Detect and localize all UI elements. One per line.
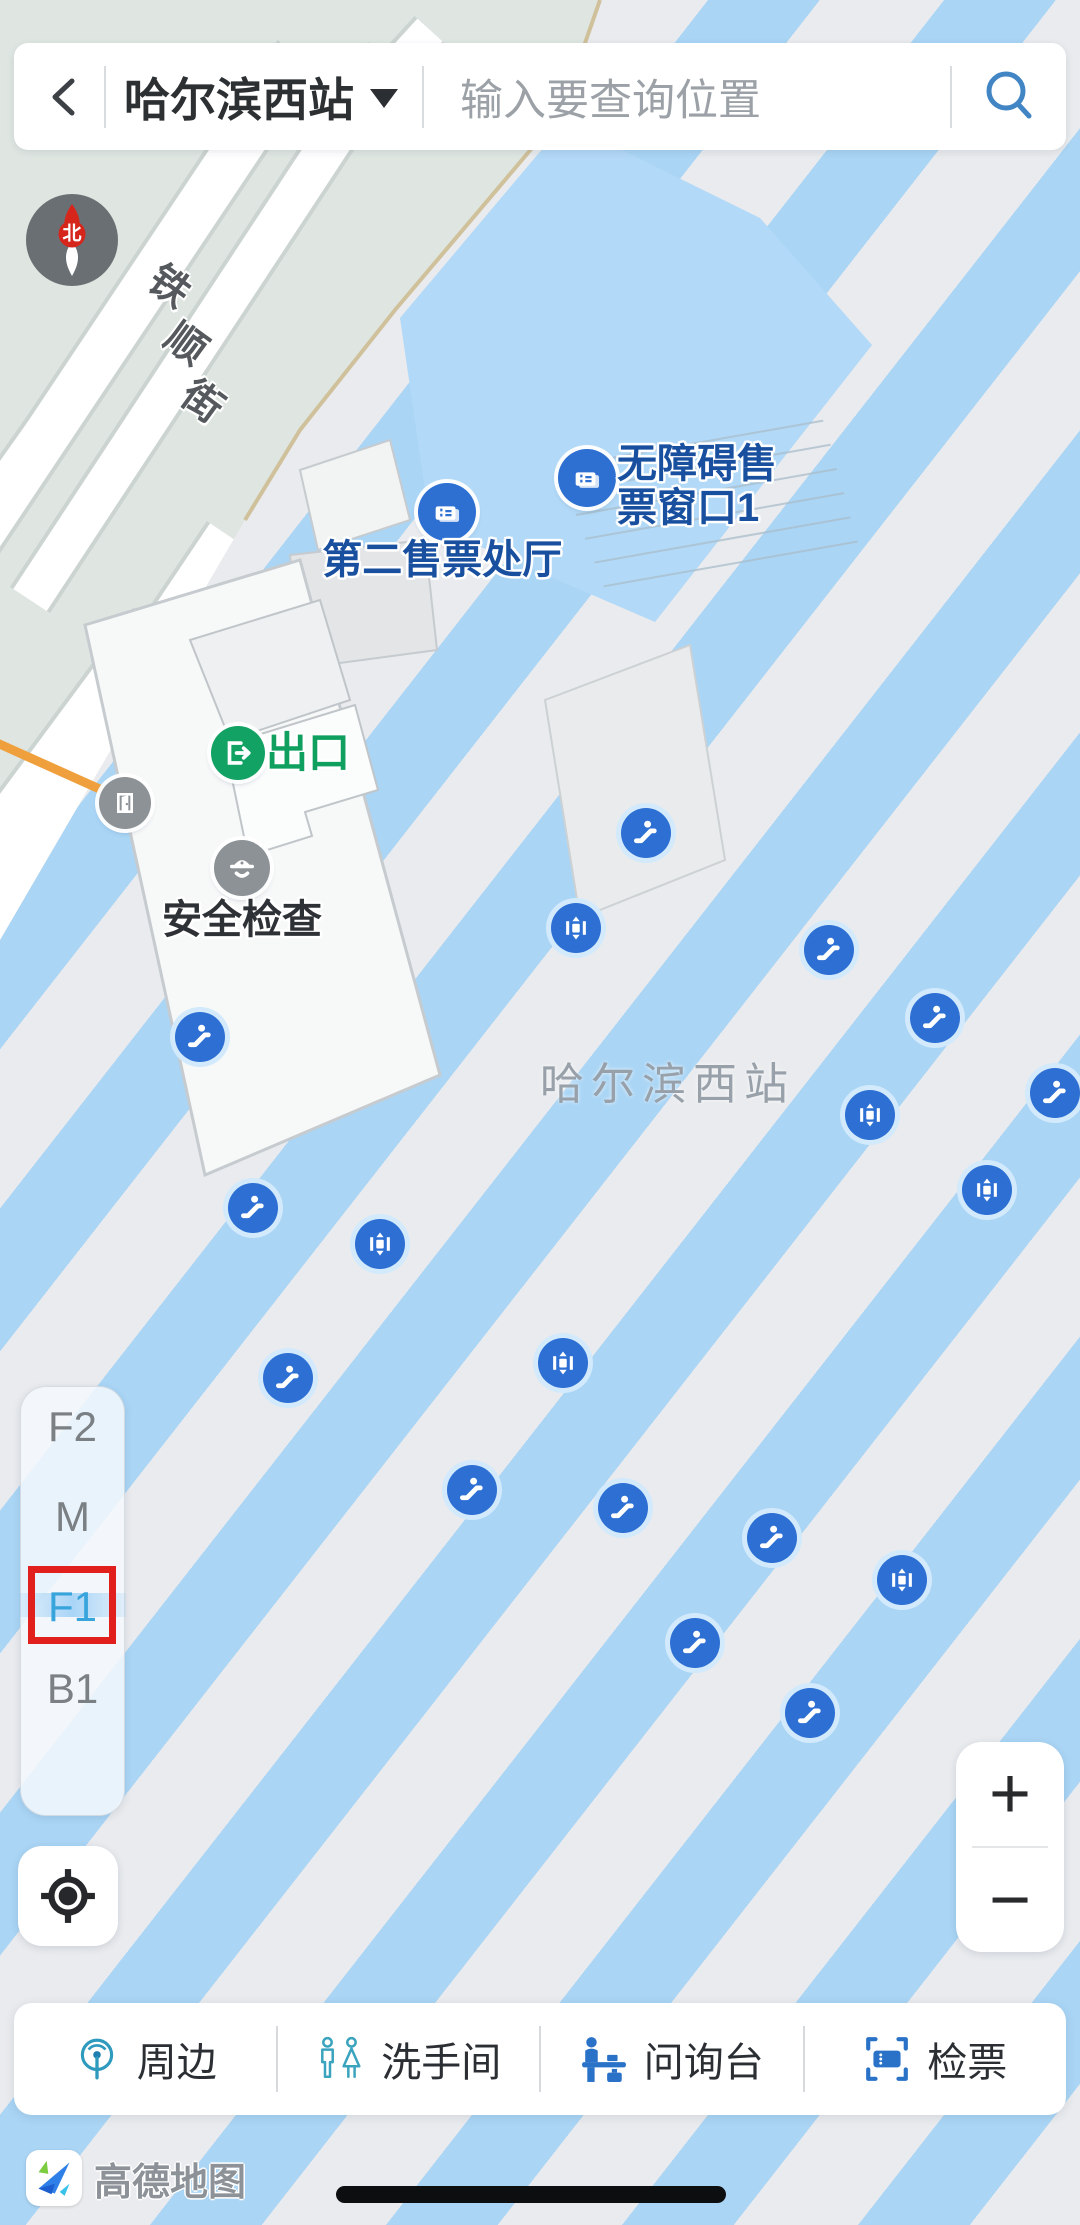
floor-item-b1[interactable]: B1: [21, 1661, 124, 1717]
ticket-check-icon: [863, 2035, 911, 2083]
toolbar-item-restroom[interactable]: 洗手间: [278, 2003, 540, 2115]
search-button[interactable]: [952, 65, 1066, 129]
zoom-out-button[interactable]: −: [956, 1848, 1064, 1952]
back-button[interactable]: [42, 73, 90, 121]
poi-label: 第二售票处厅: [322, 538, 562, 582]
map-canvas[interactable]: [0, 0, 1080, 2225]
door-icon: [99, 777, 151, 829]
dropdown-caret-icon: [370, 89, 398, 108]
zoom-in-button[interactable]: +: [956, 1742, 1064, 1846]
toolbar-label: 周边: [137, 2030, 217, 2088]
search-icon: [978, 65, 1042, 129]
search-placeholder: 输入要查询位置: [460, 66, 761, 128]
floor-item-f2[interactable]: F2: [21, 1399, 124, 1455]
station-selector-label: 哈尔滨西站: [124, 64, 354, 130]
toolbar-item-nearby[interactable]: 周边: [14, 2003, 276, 2115]
poi-label: 无障碍售 票窗口1: [617, 442, 777, 530]
ticket-window-icon: [558, 449, 616, 507]
zoom-controls: + −: [956, 1742, 1064, 1952]
restroom-icon: [315, 2035, 365, 2083]
home-indicator[interactable]: [336, 2186, 726, 2203]
search-input[interactable]: 输入要查询位置: [424, 66, 950, 128]
floor-item-m[interactable]: M: [21, 1489, 124, 1545]
poi-label: 出口: [266, 731, 350, 775]
locate-button[interactable]: [18, 1846, 118, 1946]
exit-icon: [211, 726, 265, 780]
toolbar-label: 问询台: [644, 2030, 764, 2088]
security-icon: [214, 840, 270, 896]
amap-logo-icon: [26, 2150, 82, 2206]
amap-indoor-map-screen: 哈尔滨西站 铁 顺 街 无障碍售 票窗口1: [0, 0, 1080, 2225]
information-desk-icon: [580, 2035, 628, 2083]
amap-logo-text: 高德地图: [94, 2151, 246, 2206]
amap-logo: 高德地图: [26, 2150, 246, 2206]
poi-label: 安全检查: [162, 898, 322, 942]
nearby-icon: [73, 2035, 121, 2083]
toolbar-label: 检票: [927, 2030, 1007, 2088]
toolbar-label: 洗手间: [381, 2030, 501, 2088]
compass-control[interactable]: 北: [24, 192, 120, 288]
ticket-window-icon: [418, 483, 476, 541]
crosshair-icon: [39, 1867, 97, 1925]
toolbar-item-information-desk[interactable]: 问询台: [541, 2003, 803, 2115]
annotation-highlight-box: [28, 1566, 116, 1644]
bottom-toolbar: 周边 洗手间 问询台: [14, 2003, 1066, 2115]
search-bar: 哈尔滨西站 输入要查询位置: [14, 43, 1066, 150]
compass-north-label: 北: [62, 223, 81, 245]
toolbar-item-ticket-check[interactable]: 检票: [805, 2003, 1067, 2115]
station-selector[interactable]: 哈尔滨西站: [106, 64, 422, 130]
station-watermark: 哈尔滨西站: [540, 1048, 795, 1112]
